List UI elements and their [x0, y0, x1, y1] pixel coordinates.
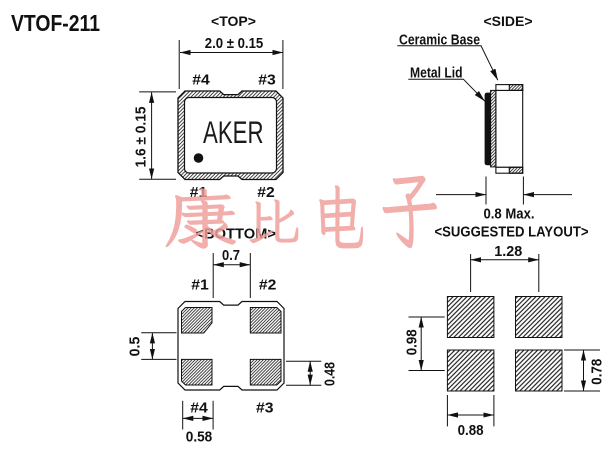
svg-text:0.8 Max.: 0.8 Max. [484, 207, 535, 223]
svg-text:#2: #2 [257, 184, 275, 201]
svg-text:2.0 ± 0.15: 2.0 ± 0.15 [205, 36, 264, 52]
svg-text:#3: #3 [258, 72, 276, 89]
svg-text:0.5: 0.5 [126, 337, 143, 357]
svg-text:AKER: AKER [203, 114, 264, 150]
svg-text:#4: #4 [190, 400, 208, 417]
svg-text:#2: #2 [259, 277, 277, 294]
svg-text:<SIDE>: <SIDE> [483, 13, 532, 29]
svg-text:VTOF-211: VTOF-211 [11, 10, 100, 36]
svg-text:0.48: 0.48 [322, 362, 339, 386]
svg-text:0.78: 0.78 [588, 359, 605, 385]
svg-text:<SUGGESTED LAYOUT>: <SUGGESTED LAYOUT> [435, 225, 589, 241]
svg-text:#3: #3 [256, 400, 274, 417]
svg-text:<TOP>: <TOP> [211, 13, 256, 29]
svg-text:0.7: 0.7 [222, 247, 240, 264]
svg-text:1.6 ± 0.15: 1.6 ± 0.15 [133, 107, 149, 168]
svg-text:0.58: 0.58 [186, 428, 213, 445]
svg-text:#1: #1 [191, 277, 209, 294]
svg-text:#4: #4 [192, 72, 210, 89]
svg-text:0.88: 0.88 [458, 422, 484, 439]
svg-text:0.98: 0.98 [404, 329, 421, 355]
svg-text:1.28: 1.28 [494, 243, 522, 260]
